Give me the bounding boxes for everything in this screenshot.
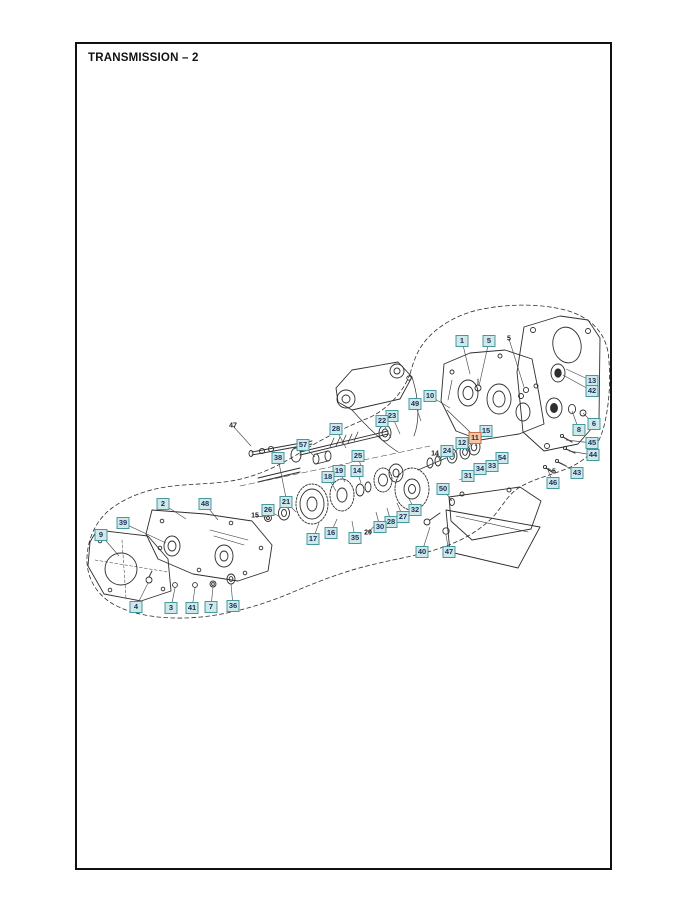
callout-46[interactable]: 46 xyxy=(547,477,560,489)
callout-40[interactable]: 40 xyxy=(416,546,429,558)
callout-32[interactable]: 32 xyxy=(409,504,422,516)
ref-number-47: 47 xyxy=(229,423,237,430)
ref-number-29: 29 xyxy=(364,530,372,537)
ref-number-5: 5 xyxy=(507,336,511,343)
callout-48[interactable]: 48 xyxy=(199,498,212,510)
callout-3[interactable]: 3 xyxy=(165,602,178,614)
callout-10[interactable]: 10 xyxy=(424,390,437,402)
callout-35[interactable]: 35 xyxy=(349,532,362,544)
callout-36[interactable]: 36 xyxy=(227,600,240,612)
callout-24[interactable]: 24 xyxy=(441,445,454,457)
callout-layer: 1513421049232268151112452857244425385433… xyxy=(0,0,688,900)
callout-1[interactable]: 1 xyxy=(456,335,469,347)
ref-number-15: 15 xyxy=(251,513,259,520)
callout-2[interactable]: 2 xyxy=(157,498,170,510)
callout-21[interactable]: 21 xyxy=(280,496,293,508)
callout-49[interactable]: 49 xyxy=(409,398,422,410)
callout-31[interactable]: 31 xyxy=(462,470,475,482)
callout-33[interactable]: 33 xyxy=(486,460,499,472)
callout-27[interactable]: 27 xyxy=(397,511,410,523)
callout-41[interactable]: 41 xyxy=(186,602,199,614)
callout-5[interactable]: 5 xyxy=(483,335,496,347)
callout-12[interactable]: 12 xyxy=(456,437,469,449)
callout-6[interactable]: 6 xyxy=(588,418,601,430)
callout-14[interactable]: 14 xyxy=(351,465,364,477)
callout-11-highlighted[interactable]: 11 xyxy=(469,432,482,444)
callout-25[interactable]: 25 xyxy=(352,450,365,462)
callout-50[interactable]: 50 xyxy=(437,483,450,495)
callout-17[interactable]: 17 xyxy=(307,533,320,545)
callout-7[interactable]: 7 xyxy=(205,601,218,613)
callout-9[interactable]: 9 xyxy=(95,529,108,541)
callout-8[interactable]: 8 xyxy=(573,424,586,436)
callout-42[interactable]: 42 xyxy=(586,385,599,397)
callout-22[interactable]: 22 xyxy=(376,415,389,427)
callout-57[interactable]: 57 xyxy=(297,439,310,451)
callout-34[interactable]: 34 xyxy=(474,463,487,475)
callout-26[interactable]: 26 xyxy=(262,504,275,516)
parts-catalog-page: TRANSMISSION – 2 xyxy=(0,0,688,900)
callout-16[interactable]: 16 xyxy=(325,527,338,539)
callout-18[interactable]: 18 xyxy=(322,471,335,483)
callout-4[interactable]: 4 xyxy=(130,601,143,613)
ref-number-5: 5 xyxy=(552,469,556,476)
callout-30[interactable]: 30 xyxy=(374,521,387,533)
callout-39[interactable]: 39 xyxy=(117,517,130,529)
callout-45[interactable]: 45 xyxy=(586,437,599,449)
callout-28[interactable]: 28 xyxy=(330,423,343,435)
callout-44[interactable]: 44 xyxy=(587,449,600,461)
callout-47[interactable]: 47 xyxy=(443,546,456,558)
callout-38[interactable]: 38 xyxy=(272,452,285,464)
callout-43[interactable]: 43 xyxy=(571,467,584,479)
ref-number-14: 14 xyxy=(431,451,439,458)
